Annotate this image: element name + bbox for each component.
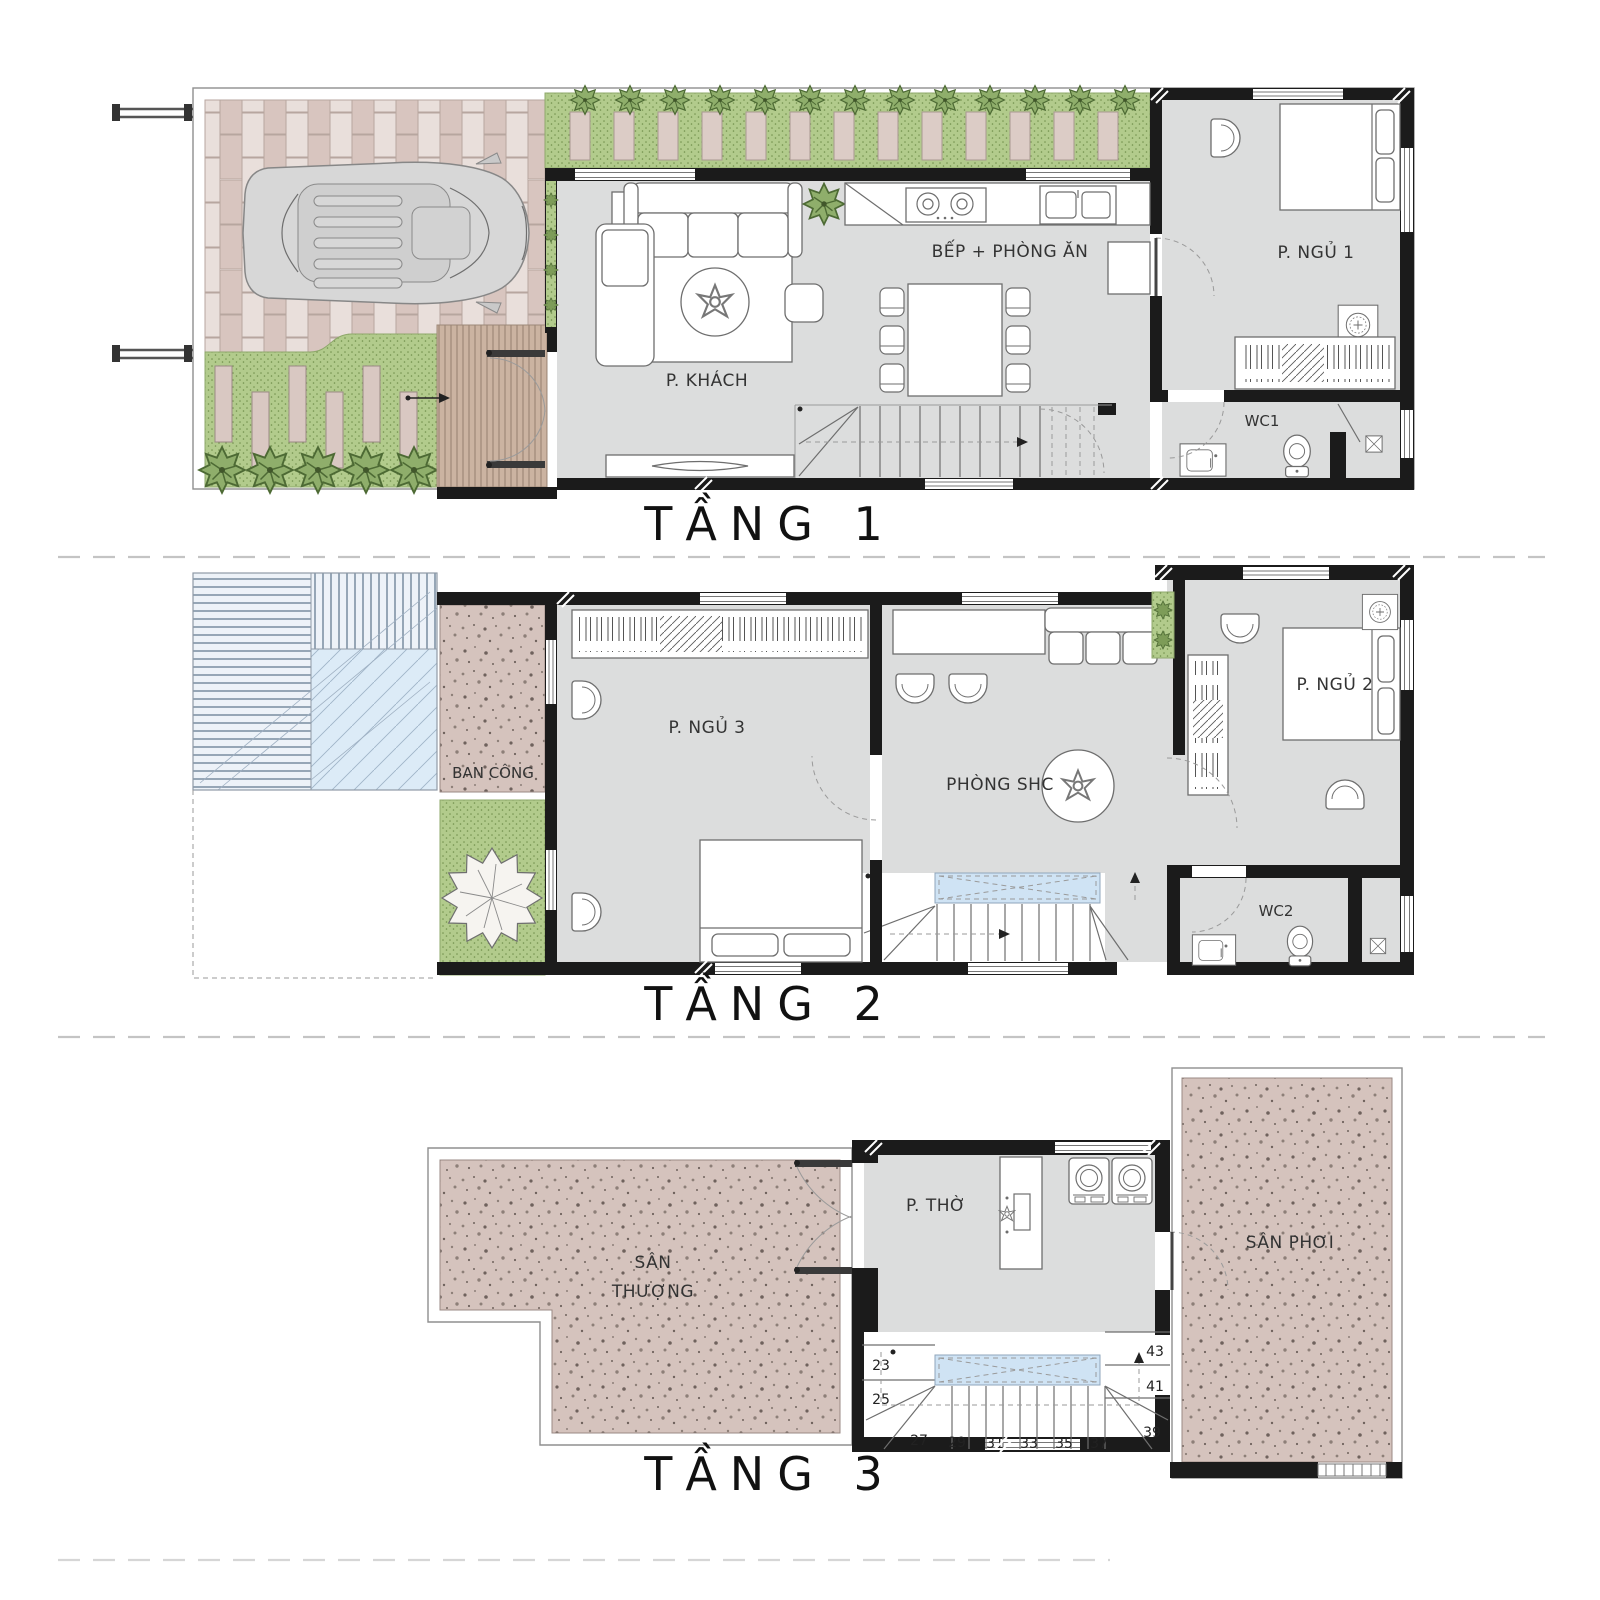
floor2-plan: BAN CÔNG <box>193 565 1414 1031</box>
room-label-bedroom1: P. NGỦ 1 <box>1278 240 1355 263</box>
tv-console <box>606 455 794 477</box>
washing-machine-2 <box>1112 1158 1152 1204</box>
side-table <box>785 284 823 322</box>
shc-desk <box>893 610 1045 654</box>
wardrobe2 <box>1188 655 1228 795</box>
wardrobe1 <box>1235 337 1395 389</box>
step-43: 43 <box>1146 1344 1164 1360</box>
stairs-floor2 <box>860 872 1140 962</box>
fridge <box>1108 242 1150 294</box>
wc2-sink <box>1192 935 1235 965</box>
drying-yard <box>1182 1078 1392 1462</box>
bedroom2-fan <box>1362 594 1397 629</box>
gate-marker-top <box>112 104 193 121</box>
roof-louver <box>193 573 437 790</box>
car-sunroof <box>412 207 470 259</box>
bed3 <box>700 840 862 962</box>
shc-sofa <box>1045 608 1162 664</box>
room-label-kitchen: BẾP + PHÒNG ĂN <box>932 238 1089 262</box>
step-23: 23 <box>872 1358 890 1374</box>
stove <box>906 188 986 222</box>
shower-stool <box>1366 436 1382 452</box>
step-29: 29 <box>948 1435 966 1451</box>
floor3-title: TẦNG 3 <box>643 1442 896 1501</box>
room-label-bedroom3: P. NGỦ 3 <box>669 715 746 738</box>
step-37: 37 <box>1090 1436 1108 1452</box>
washing-machine-1 <box>1069 1158 1109 1204</box>
lawn-trees <box>199 447 437 493</box>
room-label-balcony: BAN CÔNG <box>452 763 534 782</box>
room-label-worship: P. THỜ <box>906 1194 966 1216</box>
step-39: 39 <box>1143 1425 1161 1441</box>
kitchen-sink <box>1040 186 1116 224</box>
room-label-living: P. KHÁCH <box>666 369 748 391</box>
wardrobe3 <box>572 610 868 658</box>
room-label-wc1: WC1 <box>1245 412 1280 430</box>
room-label-drying: SÂN PHƠI <box>1246 1231 1334 1253</box>
dining-table <box>908 284 1002 396</box>
room-label-terrace-line1: SÂN <box>635 1251 672 1273</box>
altar <box>999 1157 1042 1269</box>
floor3-plan: SÂN THƯỢNG SÂN PHƠI <box>428 1068 1402 1501</box>
gate-marker-bottom <box>112 345 193 362</box>
coffee-table <box>681 268 749 336</box>
step-35: 35 <box>1055 1436 1073 1452</box>
bed1 <box>1280 104 1400 210</box>
plot-dashed-line <box>193 790 437 978</box>
wc1-sink <box>1180 444 1226 476</box>
wc2-toilet <box>1287 926 1312 966</box>
chaise-chair <box>596 224 654 366</box>
plan-drawing: P. KHÁCH BẾP + PHÒNG ĂN <box>0 0 1600 1600</box>
room-label-bedroom2: P. NGỦ 2 <box>1297 672 1374 695</box>
wc1-toilet <box>1284 435 1311 477</box>
potted-plant <box>804 184 845 225</box>
floor1-title: TẦNG 1 <box>643 492 896 551</box>
room-label-wc2: WC2 <box>1259 902 1294 920</box>
step-25: 25 <box>872 1392 890 1408</box>
room-label-family: PHÒNG SHC <box>946 773 1054 795</box>
floor-plan-sheet: P. KHÁCH BẾP + PHÒNG ĂN <box>0 0 1600 1600</box>
step-41: 41 <box>1146 1379 1164 1395</box>
wc2-stool <box>1370 938 1385 953</box>
step-33: 33 <box>1020 1436 1038 1452</box>
step-27: 27 <box>910 1433 928 1449</box>
car <box>243 153 529 313</box>
room-label-terrace-line2: THƯỢNG <box>611 1282 694 1302</box>
floor1-plan: P. KHÁCH BẾP + PHÒNG ĂN <box>112 86 1414 551</box>
floor2-title: TẦNG 2 <box>643 972 896 1031</box>
